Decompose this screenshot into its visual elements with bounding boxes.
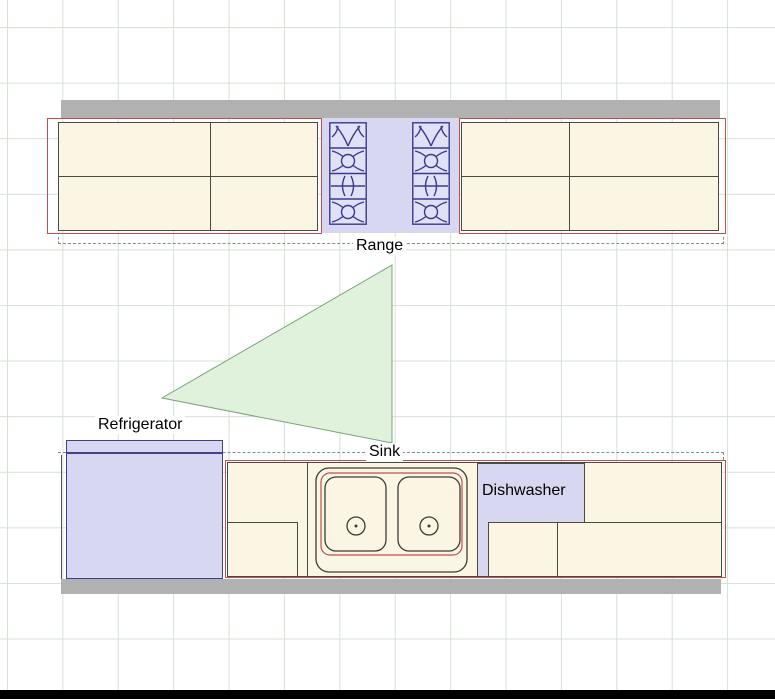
bottom-left-cabinet-divider [307, 462, 308, 577]
bottom-right-drawer-row[interactable] [488, 522, 722, 577]
top-left-cabinet-divider-horizontal [58, 176, 318, 177]
work-triangle[interactable] [150, 255, 410, 455]
top-right-cabinet-divider-horizontal [461, 176, 719, 177]
bottom-right-drawer-divider [557, 522, 558, 577]
refrigerator-door-line [67, 452, 222, 454]
range-label: Range [353, 237, 406, 255]
range-burner-panel-right [412, 122, 450, 225]
top-wall[interactable] [61, 100, 720, 118]
refrigerator-label: Refrigerator [95, 416, 185, 434]
bottom-left-drawer[interactable] [227, 522, 298, 577]
bottom-wall[interactable] [61, 579, 721, 594]
range-burner-panel-left [329, 122, 367, 225]
sink-label: Sink [366, 443, 403, 461]
refrigerator[interactable] [66, 440, 223, 579]
bottom-counter-left-edge [61, 455, 62, 579]
sink[interactable] [310, 464, 477, 576]
dishwasher-label: Dishwasher [479, 482, 569, 500]
window-bottom-bar [0, 690, 775, 699]
range[interactable] [322, 118, 459, 233]
kitchen-plan-canvas: Range Dishwasher Sink Refrigerator [0, 0, 775, 699]
